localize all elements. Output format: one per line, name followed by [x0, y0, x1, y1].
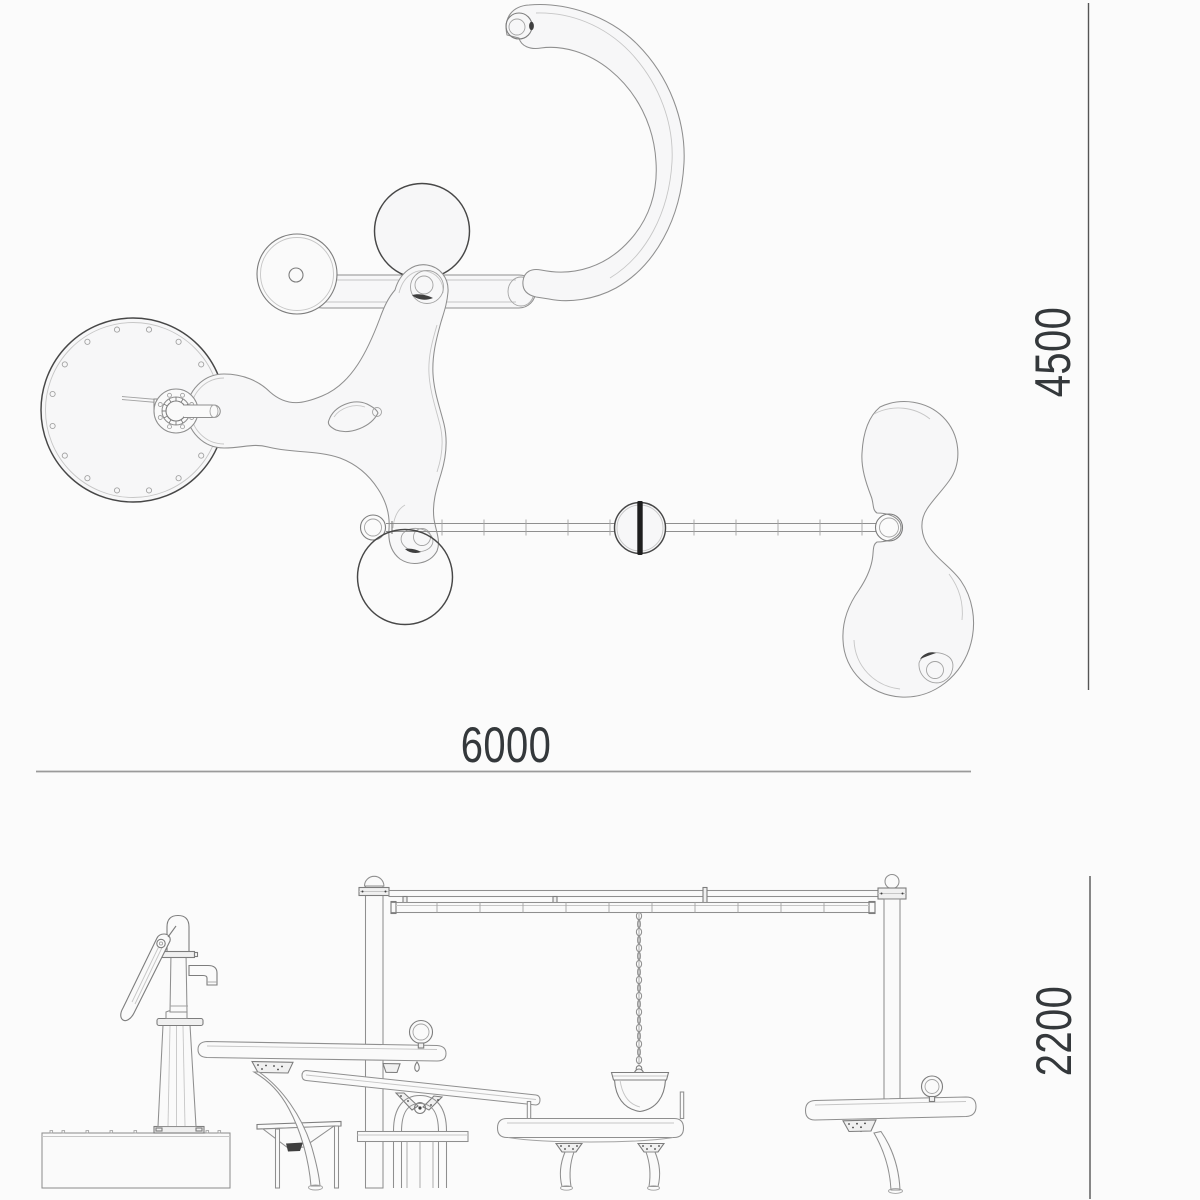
elevation-view — [42, 875, 976, 1194]
right-post — [878, 875, 906, 1105]
tilting-channel — [302, 1071, 540, 1114]
right-water-table-plan — [843, 402, 974, 698]
chain-and-bucket — [612, 912, 669, 1111]
elevation-height-dimension-label: 2200 — [1026, 986, 1082, 1077]
drawing-svg: 6000 4500 2200 — [0, 0, 1200, 1200]
perforated-disc-plan — [257, 234, 337, 314]
pump-body — [170, 953, 187, 1012]
overhead-boom — [389, 888, 878, 914]
technical-drawing-sheet: 6000 4500 2200 — [0, 0, 1200, 1200]
plan-width-dimension-label: 6000 — [461, 717, 552, 773]
center-pivot-bar — [637, 501, 642, 555]
right-table-leg — [874, 1132, 900, 1191]
pump-plinth — [42, 1133, 230, 1188]
pump-pedestal — [158, 1025, 196, 1127]
plan-height-dimension-label: 4500 — [1025, 307, 1081, 398]
round-water-table — [498, 1092, 684, 1190]
wheel-axle — [184, 405, 220, 418]
post-cap-dome — [365, 876, 384, 886]
central-water-table-plan — [187, 265, 448, 564]
plan-view — [41, 5, 974, 698]
water-table-1 — [198, 1042, 446, 1191]
valve-handle-1 — [410, 1021, 433, 1049]
curved-slide-channel — [506, 5, 684, 301]
drip-spout — [415, 1062, 420, 1072]
pump-head — [167, 916, 189, 957]
